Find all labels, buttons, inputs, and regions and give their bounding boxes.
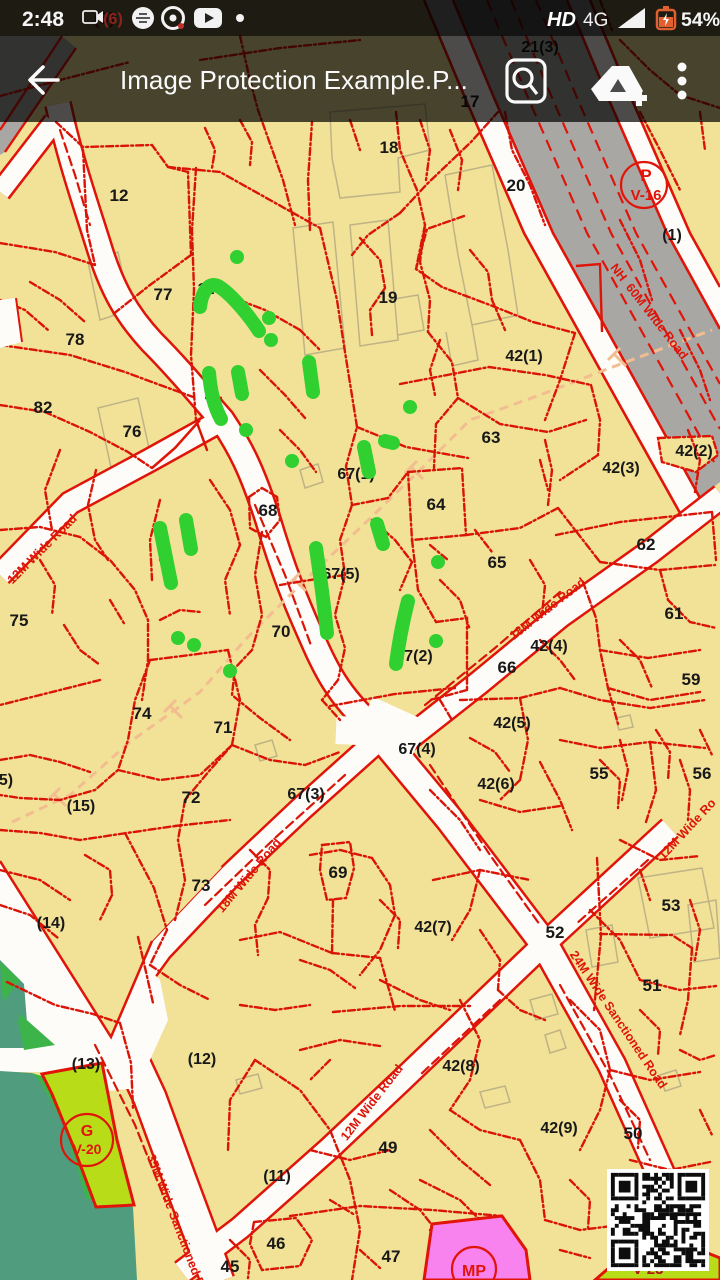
svg-text:78: 78	[66, 330, 85, 349]
svg-text:64: 64	[427, 495, 446, 514]
svg-text:70: 70	[272, 622, 291, 641]
svg-text:42(6): 42(6)	[477, 776, 514, 793]
svg-text:54%: 54%	[681, 9, 720, 31]
svg-text:52: 52	[546, 923, 565, 942]
svg-text:47: 47	[382, 1247, 401, 1266]
svg-text:56: 56	[693, 764, 712, 783]
svg-text:G: G	[81, 1123, 93, 1140]
svg-text:(6): (6)	[103, 11, 123, 28]
svg-text:Image Protection Example.P...: Image Protection Example.P...	[120, 65, 468, 95]
svg-text:68: 68	[259, 501, 278, 520]
svg-text:12: 12	[110, 186, 129, 205]
svg-text:59: 59	[682, 670, 701, 689]
svg-text:50: 50	[624, 1124, 643, 1143]
svg-text:67(3): 67(3)	[287, 786, 324, 803]
svg-text:65: 65	[488, 553, 507, 572]
svg-text:4G: 4G	[583, 10, 608, 31]
svg-text:20: 20	[507, 176, 526, 195]
svg-text:42(1): 42(1)	[505, 348, 542, 365]
svg-text:18: 18	[380, 138, 399, 157]
svg-text:61: 61	[665, 604, 684, 623]
svg-text:66: 66	[498, 658, 517, 677]
svg-text:(11): (11)	[263, 1168, 291, 1185]
svg-text:(13): (13)	[72, 1056, 100, 1073]
svg-text:42(7): 42(7)	[414, 919, 451, 936]
svg-text:5): 5)	[0, 772, 13, 789]
svg-text:82: 82	[34, 398, 53, 417]
svg-text:51: 51	[643, 976, 662, 995]
svg-text:71: 71	[214, 718, 233, 737]
svg-text:75: 75	[10, 611, 29, 630]
svg-text:2:48: 2:48	[22, 8, 64, 31]
svg-text:(15): (15)	[67, 798, 95, 815]
svg-text:(12): (12)	[188, 1051, 216, 1068]
svg-text:72: 72	[182, 788, 201, 807]
svg-text:73: 73	[192, 876, 211, 895]
svg-text:42(8): 42(8)	[442, 1058, 479, 1075]
svg-text:(14): (14)	[37, 915, 65, 932]
svg-text:P: P	[640, 166, 651, 185]
svg-text:53: 53	[662, 896, 681, 915]
svg-text:42(9): 42(9)	[540, 1120, 577, 1137]
svg-text:42(3): 42(3)	[602, 460, 639, 477]
svg-text:63: 63	[482, 428, 501, 447]
svg-text:62: 62	[637, 535, 656, 554]
svg-text:46: 46	[267, 1234, 286, 1253]
svg-text:(1): (1)	[662, 227, 682, 244]
svg-text:49: 49	[379, 1138, 398, 1157]
svg-text:MP: MP	[462, 1263, 486, 1280]
svg-text:HD: HD	[547, 9, 576, 31]
svg-text:42(5): 42(5)	[493, 715, 530, 732]
svg-text:76: 76	[123, 422, 142, 441]
svg-text:19: 19	[379, 288, 398, 307]
svg-text:45: 45	[221, 1257, 240, 1276]
svg-text:55: 55	[590, 764, 609, 783]
svg-text:V-20: V-20	[73, 1141, 102, 1157]
svg-text:69: 69	[329, 863, 348, 882]
svg-text:42(2): 42(2)	[675, 443, 712, 460]
svg-text:67(5): 67(5)	[322, 566, 359, 583]
svg-text:77: 77	[154, 285, 173, 304]
svg-text:67(4): 67(4)	[398, 741, 435, 758]
svg-text:74: 74	[133, 704, 152, 723]
svg-text:42(4): 42(4)	[530, 638, 567, 655]
svg-text:V-16: V-16	[631, 187, 662, 204]
